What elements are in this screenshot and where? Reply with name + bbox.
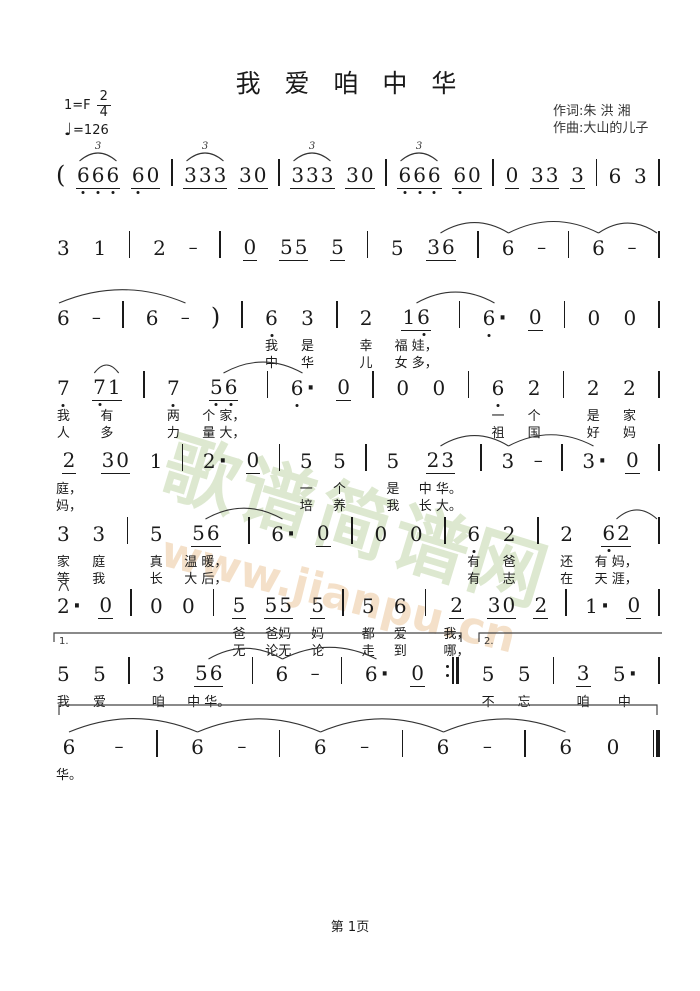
note-digit: 0: [606, 734, 621, 760]
barline: [130, 586, 132, 619]
note-digit: 5: [310, 592, 325, 618]
note-cell: –: [360, 727, 369, 784]
note: 5: [385, 441, 400, 474]
note-group: 666: [76, 162, 120, 189]
note-group: 0: [432, 375, 447, 401]
note-digit: 5: [385, 448, 400, 474]
note-cell: 6: [608, 156, 623, 189]
bar-thin: [372, 371, 374, 398]
note-group: 2: [502, 521, 517, 547]
barline: [561, 441, 563, 474]
note: 1·: [584, 586, 609, 619]
note-digit: 6: [436, 734, 451, 760]
note-digit: 6: [76, 162, 91, 188]
barline: [241, 298, 243, 331]
note: 5: [149, 514, 164, 547]
volta-number: 2.: [484, 636, 494, 647]
note-digit: 0: [410, 660, 425, 686]
note-digit: 1: [401, 304, 416, 330]
note-group: 6: [190, 734, 205, 760]
note-group: 3: [91, 521, 106, 547]
note-digit: 0: [373, 521, 388, 547]
note-group: 23: [426, 447, 455, 474]
barline: [219, 228, 221, 261]
barline: [425, 586, 427, 619]
note-group: 0: [626, 592, 641, 619]
bar-thin: [565, 589, 567, 616]
bar-thin: [171, 159, 173, 186]
note: 3: [576, 654, 591, 687]
bar-thin: [129, 231, 131, 258]
note-digit: 3: [290, 162, 305, 188]
note: 5: [361, 586, 376, 619]
note-group: 0: [587, 305, 602, 331]
note-cell: –: [189, 228, 198, 261]
note-group: 2: [559, 521, 574, 547]
note-group: 0: [622, 305, 637, 331]
note-digit: 3: [633, 163, 648, 189]
note-group: 6: [270, 521, 285, 547]
note: –: [360, 727, 369, 760]
note: 666: [397, 156, 441, 189]
note: 1: [149, 441, 164, 474]
note-group: 2: [152, 235, 167, 261]
note: 56: [194, 654, 223, 687]
bar-thin: [658, 589, 660, 616]
note-digit: 3: [238, 162, 253, 188]
bar-thin: [658, 371, 660, 398]
duration-dash: –: [483, 734, 492, 760]
note-group: 7: [56, 375, 71, 401]
note: 0: [432, 368, 447, 401]
note-group: 30: [487, 592, 516, 619]
note: 71: [92, 368, 121, 401]
note-group: 6: [62, 734, 77, 760]
note-digit: 6: [145, 305, 160, 331]
note-digit: 2: [527, 375, 542, 401]
note-group: 5: [56, 661, 71, 687]
note-group: 0: [181, 593, 196, 619]
note: 55: [264, 586, 293, 619]
note-digit: 0: [502, 592, 517, 618]
note-digit: 2: [202, 448, 217, 474]
augmentation-dot: ·: [629, 663, 637, 687]
note: 2: [559, 514, 574, 547]
note-group: 666: [397, 162, 441, 189]
bar-thin: [267, 371, 269, 398]
barline: [492, 156, 494, 189]
note-group: 5: [332, 448, 347, 474]
note: 62: [601, 514, 630, 547]
note: 0: [243, 228, 258, 261]
note-group: 6: [264, 305, 279, 331]
note-digit: 0: [253, 162, 268, 188]
bar-thin: [213, 589, 215, 616]
note: 36: [426, 228, 455, 261]
barline: [341, 654, 343, 687]
note-group: 55: [264, 592, 293, 619]
barline: [563, 368, 565, 401]
note-group: 6: [313, 734, 328, 760]
note-cell: 333: [183, 156, 227, 189]
note-digit: 3: [56, 521, 71, 547]
note-group: 0: [98, 592, 113, 619]
note-group: 3: [56, 235, 71, 261]
note: 0: [505, 156, 520, 189]
note: 5: [299, 441, 314, 474]
note-cell: 333: [290, 156, 334, 189]
note: 5: [92, 654, 107, 687]
note-group: 2: [533, 592, 548, 619]
tuplet-number: 3: [416, 141, 422, 152]
barline: [278, 156, 280, 189]
note: 6: [264, 298, 279, 331]
note: 6: [501, 228, 516, 261]
note: 5: [517, 654, 532, 687]
duration-dash: –: [628, 235, 637, 261]
bar-thin: [279, 444, 281, 471]
bar-thin: [564, 301, 566, 328]
bar-thin: [563, 371, 565, 398]
barline: [537, 514, 539, 547]
note-group: 333: [183, 162, 227, 189]
note-digit: 3: [305, 162, 320, 188]
tuplet-number: 3: [309, 141, 315, 152]
note: 6: [558, 727, 573, 760]
note-group: 6: [466, 521, 481, 547]
note-group: 0: [395, 375, 410, 401]
note-group: 6: [275, 661, 290, 687]
barline: [127, 514, 129, 547]
barline: [351, 514, 353, 547]
barline: [279, 727, 281, 760]
bar-thin: [658, 517, 660, 544]
note-digit: 0: [505, 162, 520, 188]
note-cell: 2: [152, 228, 167, 261]
note: 6: [591, 228, 606, 261]
augmentation-dot: ·: [306, 377, 314, 401]
note-digit: 7: [92, 374, 107, 400]
note-digit: 6: [397, 162, 412, 188]
note-cell: 5: [330, 228, 345, 261]
note-digit: 2: [586, 375, 601, 401]
note-group: 3: [633, 163, 648, 189]
sheet-music-page: 歌谱简谱网 www.jianpu.cn 我 爱 咱 中 华 1=F 2 4 ♩ …: [0, 0, 700, 991]
note-digit: 6: [190, 734, 205, 760]
note-group: 0: [336, 374, 351, 401]
note-digit: 6: [313, 734, 328, 760]
note: 0: [149, 586, 164, 619]
system-line: (666603333033330666600333633333: [56, 130, 660, 189]
note-group: 30: [238, 162, 267, 189]
note-digit: 0: [360, 162, 375, 188]
note-digit: 6: [466, 521, 481, 547]
barline: [568, 228, 570, 261]
note-digit: 5: [149, 521, 164, 547]
note: 55: [279, 228, 308, 261]
bar-thin: [252, 657, 254, 684]
note-digit: 6: [270, 521, 285, 547]
bar-thin: [537, 517, 539, 544]
bar-thin: [182, 444, 184, 471]
bar-thin: [130, 589, 132, 616]
note: 6: [436, 727, 451, 760]
note-group: 6: [501, 235, 516, 261]
note-group: 5: [299, 448, 314, 474]
note-group: 6: [56, 305, 71, 331]
note-cell: 6: [501, 228, 516, 261]
note: 6: [491, 368, 506, 401]
note-group: 0: [410, 660, 425, 687]
note-digit: 3: [530, 162, 545, 188]
note: –: [483, 727, 492, 760]
note-digit: 3: [198, 162, 213, 188]
note: 5·: [612, 654, 637, 687]
barline: [565, 586, 567, 619]
note: 3: [56, 228, 71, 261]
note-group: 56: [209, 374, 238, 401]
note-digit: 5: [264, 592, 279, 618]
note-digit: 6: [224, 374, 239, 400]
barline: [658, 441, 660, 474]
note-group: 6: [491, 375, 506, 401]
note: 6: [62, 727, 77, 760]
note: –: [92, 298, 101, 331]
note-digit: 6: [491, 375, 506, 401]
note: 5: [232, 586, 247, 619]
note: 30: [345, 156, 374, 189]
note: 6: [145, 298, 160, 331]
note: 5: [330, 228, 345, 261]
note-group: 0: [409, 521, 424, 547]
note-group: 0: [606, 734, 621, 760]
note-digit: 5: [92, 661, 107, 687]
note-digit: 3: [570, 162, 585, 188]
barline: [367, 228, 369, 261]
bar-thin: [653, 730, 655, 757]
note-group: 2: [56, 593, 71, 619]
barline: [658, 514, 660, 547]
note: –: [189, 228, 198, 261]
note-row: (66660333303333066660033363: [56, 156, 660, 189]
note-digit: 0: [243, 234, 258, 260]
note-digit: 2: [502, 521, 517, 547]
note-digit: 0: [467, 162, 482, 188]
note-digit: 6: [131, 162, 146, 188]
lyric-line1: 华。: [56, 767, 82, 784]
bar-thin: [156, 730, 158, 757]
barline: [658, 654, 660, 687]
note-group: 2: [62, 447, 77, 474]
note-cell: 666: [76, 156, 120, 189]
barline: [279, 441, 281, 474]
note-digit: 3: [426, 234, 441, 260]
augmentation-dot: ·: [73, 595, 81, 619]
note-digit: 2: [359, 305, 374, 331]
note-group: 2: [527, 375, 542, 401]
note-group: 6: [482, 305, 497, 331]
barline: [342, 586, 344, 619]
barline: [365, 441, 367, 474]
note-group: 6: [591, 235, 606, 261]
note-digit: 0: [98, 592, 113, 618]
note-digit: 3: [440, 447, 455, 473]
note: 0: [373, 514, 388, 547]
note-digit: 3: [345, 162, 360, 188]
note: 56: [209, 368, 238, 401]
barline: [372, 368, 374, 401]
note-cell: 6华。: [56, 727, 82, 784]
note-digit: 2: [559, 521, 574, 547]
note-digit: 0: [115, 447, 130, 473]
barline: [596, 156, 598, 189]
note-cell: 33: [530, 156, 559, 189]
note-group: 1: [92, 235, 107, 261]
duration-dash: –: [115, 734, 124, 760]
note-digit: 0: [626, 592, 641, 618]
tuplet-number: 3: [95, 141, 101, 152]
note: 5: [332, 441, 347, 474]
barline: [658, 228, 660, 261]
note: –: [628, 228, 637, 261]
note-group: 6: [393, 593, 408, 619]
barline: [171, 156, 173, 189]
note-group: 16: [401, 304, 430, 331]
note-digit: 0: [149, 593, 164, 619]
barline: [477, 228, 479, 261]
bar-thin: [143, 371, 145, 398]
augmentation-dot: ·: [498, 307, 506, 331]
bar-thick: [456, 657, 460, 684]
barline: [267, 368, 269, 401]
note-group: 2: [359, 305, 374, 331]
note-digit: 5: [330, 234, 345, 260]
note-digit: 3: [56, 235, 71, 261]
note: 2: [527, 368, 542, 401]
note-digit: 2: [62, 447, 77, 473]
note-digit: 6: [206, 520, 221, 546]
page-number: 第 1页: [0, 916, 700, 935]
note-digit: 2: [426, 447, 441, 473]
note-group: 2: [202, 448, 217, 474]
barline: [402, 727, 404, 760]
bar-thin: [492, 159, 494, 186]
note-digit: 3: [213, 162, 228, 188]
note-group: 6: [608, 163, 623, 189]
barline: [385, 156, 387, 189]
note-digit: 5: [56, 661, 71, 687]
note-group: 5: [330, 234, 345, 261]
note: 6: [275, 654, 290, 687]
barline: [524, 727, 526, 760]
note-digit: 6: [452, 162, 467, 188]
note-digit: 7: [166, 375, 181, 401]
note-cell: 0: [606, 727, 621, 784]
note-group: 36: [426, 234, 455, 261]
note-digit: 0: [146, 162, 161, 188]
note: 0: [410, 654, 425, 687]
note-group: 3: [501, 448, 516, 474]
repeat-dots-icon: [446, 657, 449, 684]
note-digit: 5: [232, 592, 247, 618]
barline: [128, 654, 130, 687]
note-cell: 5: [390, 228, 405, 261]
note-digit: 5: [194, 660, 209, 686]
note-group: 5: [232, 592, 247, 619]
note-digit: 5: [191, 520, 206, 546]
bar-thin: [477, 231, 479, 258]
note-group: 0: [373, 521, 388, 547]
bar-thin: [524, 730, 526, 757]
note-digit: 3: [501, 448, 516, 474]
note-group: 6: [436, 734, 451, 760]
bar-thin: [341, 657, 343, 684]
note: 6·: [482, 298, 507, 331]
note-group: 0: [243, 234, 258, 261]
note-digit: 5: [332, 448, 347, 474]
repeat-dot: [446, 674, 449, 677]
note-digit: 2: [152, 235, 167, 261]
note: (: [56, 156, 65, 189]
system-line: 6华。–6–6–6–60: [56, 701, 660, 784]
barline: [444, 514, 446, 547]
note-digit: 0: [622, 305, 637, 331]
note-digit: 1: [92, 235, 107, 261]
note-cell: 6: [558, 727, 573, 784]
bar-thin: [596, 159, 598, 186]
note-group: 30: [345, 162, 374, 189]
bar-thin: [122, 301, 124, 328]
note: 6: [313, 727, 328, 760]
note-digit: 0: [181, 593, 196, 619]
note-digit: 5: [481, 661, 496, 687]
note-digit: 5: [209, 374, 224, 400]
note-digit: 6: [427, 162, 442, 188]
note-digit: 2: [533, 592, 548, 618]
note: 2: [533, 586, 548, 619]
note: 3: [501, 441, 516, 474]
note-digit: 3: [300, 305, 315, 331]
note-group: 7: [166, 375, 181, 401]
note-digit: 6: [275, 661, 290, 687]
note-digit: 6: [558, 734, 573, 760]
note-group: 0: [528, 304, 543, 331]
bar-thin: [219, 231, 221, 258]
note-cell: 30: [238, 156, 267, 189]
bar-thin: [278, 159, 280, 186]
note-digit: 6: [106, 162, 121, 188]
barline: [156, 727, 158, 760]
note: 2·: [202, 441, 227, 474]
note-digit: 0: [528, 304, 543, 330]
note-group: 3: [570, 162, 585, 189]
duration-dash: –: [189, 235, 198, 261]
barline: [182, 441, 184, 474]
system-line: 312–05555366–6–: [56, 202, 660, 261]
bar-thin: [658, 301, 660, 328]
note-digit: 5: [361, 593, 376, 619]
note: 60: [131, 156, 160, 189]
note-group: 6: [145, 305, 160, 331]
duration-dash: –: [311, 661, 320, 687]
barline: [468, 368, 470, 401]
parenthesis: (: [56, 161, 65, 189]
note-group: 60: [131, 162, 160, 189]
note: 7: [166, 368, 181, 401]
note: 0: [246, 441, 261, 474]
note-digit: 0: [395, 375, 410, 401]
note-digit: 5: [390, 235, 405, 261]
